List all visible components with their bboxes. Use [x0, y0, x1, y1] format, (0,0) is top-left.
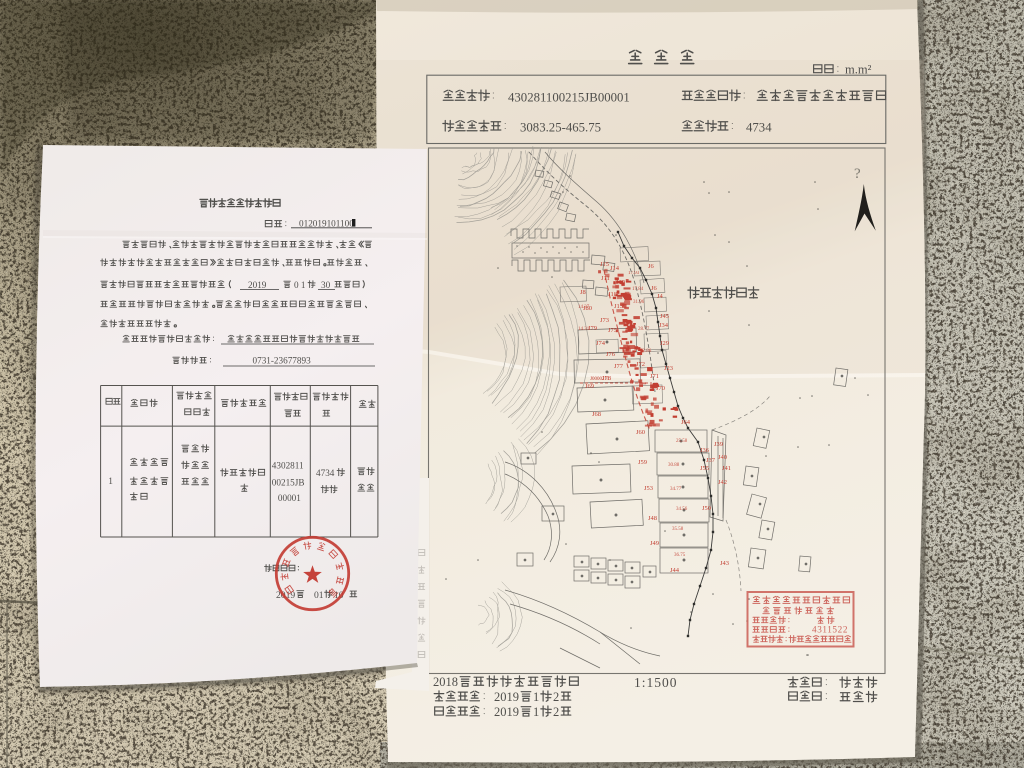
svg-text:00001: 00001 [278, 493, 301, 503]
svg-text:25.58: 25.58 [676, 439, 688, 444]
svg-text:2019: 2019 [494, 690, 519, 704]
svg-text:2: 2 [553, 690, 559, 704]
svg-text:J73: J73 [600, 317, 609, 324]
svg-text:4734: 4734 [316, 468, 335, 478]
svg-text:J48: J48 [648, 515, 657, 522]
svg-text:J4: J4 [657, 293, 664, 300]
svg-text:J43: J43 [720, 560, 729, 567]
svg-text:31.96: 31.96 [633, 300, 645, 305]
svg-text:30: 30 [321, 280, 331, 290]
svg-text:J74: J74 [596, 340, 606, 347]
svg-text:28.77: 28.77 [638, 327, 650, 332]
svg-text:14.31: 14.31 [578, 327, 590, 332]
svg-text:J79: J79 [588, 325, 597, 332]
svg-text:J71: J71 [650, 373, 659, 380]
svg-text:J37: J37 [706, 457, 716, 464]
svg-text:J36: J36 [700, 447, 710, 454]
svg-text:J64: J64 [681, 419, 691, 426]
svg-text:2018: 2018 [433, 675, 458, 689]
svg-text:4734: 4734 [746, 121, 772, 135]
svg-text:1: 1 [108, 477, 113, 487]
svg-text:J53: J53 [644, 485, 653, 492]
svg-text:1: 1 [533, 705, 539, 719]
svg-text:J40: J40 [718, 454, 727, 461]
svg-text:J18: J18 [608, 291, 617, 298]
svg-text:J44: J44 [670, 567, 680, 574]
svg-text:J11: J11 [601, 275, 610, 282]
svg-text:2: 2 [553, 705, 559, 719]
svg-text:1:1500: 1:1500 [634, 675, 678, 690]
svg-text:J10: J10 [616, 279, 625, 286]
svg-text:J59: J59 [638, 459, 647, 466]
svg-text:J42: J42 [718, 479, 727, 486]
svg-text:J77: J77 [614, 363, 624, 370]
svg-text:4311522: 4311522 [812, 625, 848, 635]
svg-text:34.56: 34.56 [676, 507, 688, 512]
svg-text:0 1: 0 1 [294, 280, 306, 290]
svg-text:17.84: 17.84 [632, 287, 644, 292]
svg-text:012019101100: 012019101100 [299, 219, 354, 229]
svg-text:01: 01 [314, 590, 324, 601]
svg-text:17.93: 17.93 [628, 271, 640, 276]
svg-text:00215JB: 00215JB [272, 478, 305, 488]
svg-text:0731-23677893: 0731-23677893 [253, 356, 312, 366]
svg-text:2019: 2019 [248, 280, 267, 290]
svg-text:12.86: 12.86 [640, 349, 652, 354]
svg-text:J69: J69 [585, 383, 594, 390]
svg-text:J70: J70 [656, 385, 665, 392]
svg-text:34.77: 34.77 [670, 487, 682, 492]
svg-text:1: 1 [533, 690, 539, 704]
svg-text:J55: J55 [700, 465, 709, 472]
svg-text:4302811: 4302811 [272, 461, 304, 471]
svg-text:J68: J68 [592, 411, 601, 418]
svg-text:J49: J49 [650, 540, 659, 547]
svg-text:J75: J75 [608, 327, 617, 334]
svg-text:J6: J6 [648, 263, 655, 270]
svg-text:430281100215JB00001: 430281100215JB00001 [508, 91, 630, 105]
svg-text:36.75: 36.75 [674, 553, 686, 558]
svg-text:J8: J8 [580, 289, 586, 296]
svg-text:2019: 2019 [494, 705, 519, 719]
svg-text:30.88: 30.88 [668, 463, 680, 468]
svg-text:J41: J41 [722, 465, 731, 472]
svg-text:J0000211: J0000211 [590, 377, 610, 382]
svg-text:J13: J13 [614, 303, 623, 310]
svg-text:J72: J72 [636, 361, 645, 368]
svg-text:J50: J50 [702, 505, 711, 512]
svg-text:J76: J76 [606, 351, 616, 358]
svg-text:J39: J39 [714, 441, 723, 448]
svg-text:J23: J23 [664, 365, 673, 372]
svg-text:J45: J45 [660, 313, 669, 320]
svg-text:J15: J15 [600, 261, 609, 268]
svg-text:J14: J14 [610, 265, 620, 272]
svg-text:J6: J6 [651, 285, 658, 292]
svg-text:35.58: 35.58 [672, 527, 684, 532]
svg-text:14.37: 14.37 [578, 305, 590, 310]
svg-text:J60: J60 [636, 429, 645, 436]
svg-text:m.m²: m.m² [845, 63, 872, 77]
svg-text:?: ? [854, 166, 861, 182]
svg-text:J29: J29 [660, 340, 669, 347]
svg-text:3083.25-465.75: 3083.25-465.75 [520, 121, 601, 135]
svg-text:J34: J34 [659, 322, 669, 329]
